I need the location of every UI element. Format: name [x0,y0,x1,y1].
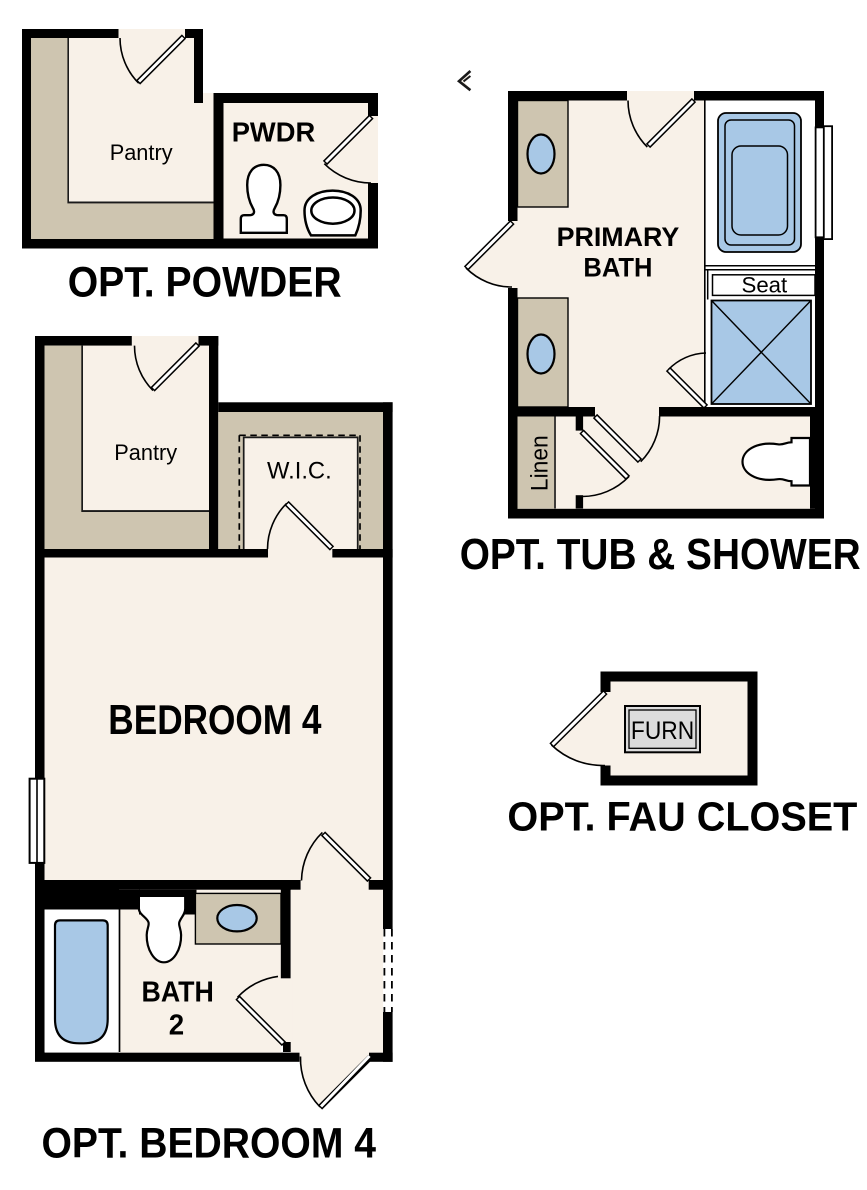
svg-text:Pantry: Pantry [110,140,173,165]
svg-text:Seat: Seat [742,273,788,298]
svg-text:BEDROOM 4: BEDROOM 4 [108,696,322,743]
svg-text:W.I.C.: W.I.C. [267,457,332,484]
svg-text:Linen: Linen [527,435,554,491]
svg-text:2: 2 [169,1010,184,1042]
svg-text:OPT. FAU CLOSET: OPT. FAU CLOSET [507,794,857,840]
svg-text:BATH: BATH [583,252,652,282]
svg-text:OPT. POWDER: OPT. POWDER [68,260,342,307]
svg-text:Pantry: Pantry [114,440,177,465]
svg-text:OPT. BEDROOM 4: OPT. BEDROOM 4 [42,1119,377,1167]
svg-text:BATH: BATH [142,977,214,1009]
svg-text:PWDR: PWDR [232,116,316,147]
svg-text:FURN: FURN [631,717,694,745]
svg-text:OPT. TUB & SHOWER: OPT. TUB & SHOWER [460,531,861,579]
svg-text:PRIMARY: PRIMARY [557,222,680,252]
